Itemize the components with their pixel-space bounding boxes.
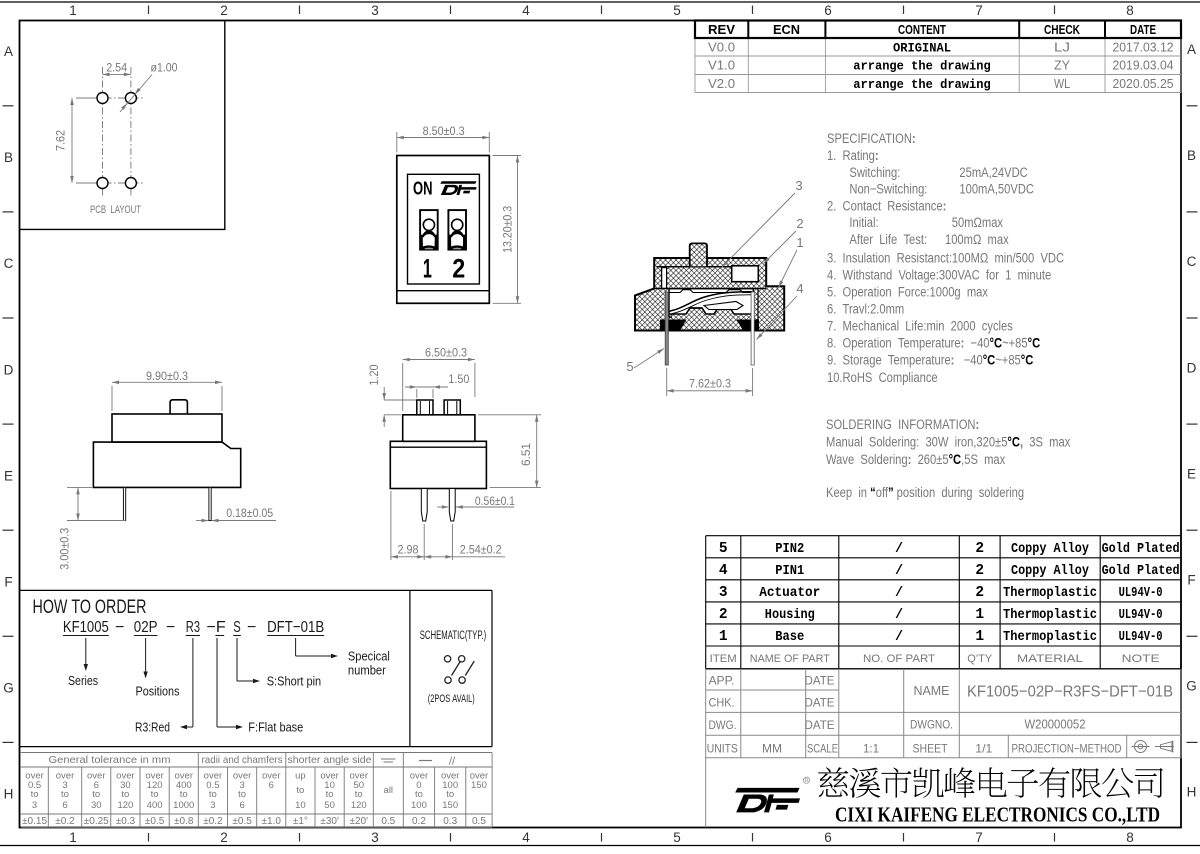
svg-text:ON: ON (413, 179, 433, 199)
svg-text:DATE: DATE (805, 696, 835, 710)
svg-text:ECN: ECN (773, 22, 800, 37)
svg-text:6: 6 (824, 3, 832, 18)
svg-text:1: 1 (975, 607, 984, 623)
svg-text:4. Withstand Voltage:300VAC: 4. Withstand Voltage:300VAC for 1 minute (827, 267, 1051, 282)
svg-text:UNITS: UNITS (707, 742, 738, 756)
svg-text:Gold Plated: Gold Plated (1102, 542, 1180, 557)
svg-text:shorter angle side: shorter angle side (288, 754, 372, 766)
svg-text:5: 5 (673, 830, 681, 845)
svg-text:to: to (180, 789, 188, 800)
svg-text:13.20±0.3: 13.20±0.3 (503, 206, 515, 253)
svg-text:−: − (247, 619, 256, 636)
svg-text:number: number (348, 664, 386, 678)
svg-text:SPECIFICATION:: SPECIFICATION: (827, 131, 916, 146)
svg-text:1. Rating:: 1. Rating: (827, 148, 879, 163)
svg-text:V0.0: V0.0 (708, 41, 735, 55)
svg-text:25mA,24VDC: 25mA,24VDC (959, 165, 1027, 180)
svg-text:MATERIAL: MATERIAL (1017, 653, 1083, 665)
svg-text:0.5: 0.5 (472, 816, 486, 827)
svg-text:NAME OF PART: NAME OF PART (750, 653, 830, 665)
svg-text:CIXI KAIFENG ELECTRONICS CO.,L: CIXI KAIFENG ELECTRONICS CO.,LTD (835, 803, 1160, 827)
svg-text:DWG.: DWG. (709, 718, 737, 732)
svg-text:1: 1 (423, 254, 432, 284)
svg-text:Series: Series (68, 674, 98, 688)
svg-text:5. Operation Force:1000g ma: 5. Operation Force:1000g max (827, 284, 989, 299)
svg-text:2. Contact Resistance:: 2. Contact Resistance: (827, 198, 946, 213)
svg-text:100mA,50VDC: 100mA,50VDC (959, 181, 1034, 196)
svg-text:Non−Switching:: Non−Switching: (849, 181, 927, 196)
svg-text:APP.: APP. (709, 674, 735, 688)
svg-text:to: to (31, 789, 39, 800)
svg-text:2: 2 (452, 254, 465, 284)
svg-text:Initial:: Initial: (849, 215, 878, 230)
svg-text:6. Travl:2.0mm: 6. Travl:2.0mm (827, 301, 904, 316)
svg-text:G: G (1186, 679, 1197, 694)
svg-text:1.20: 1.20 (369, 365, 381, 386)
svg-text:4: 4 (522, 3, 530, 18)
svg-text:MM: MM (762, 742, 782, 756)
svg-text:5: 5 (673, 3, 681, 18)
svg-text:H: H (4, 787, 14, 802)
svg-text:arrange the drawing: arrange the drawing (853, 59, 991, 74)
svg-text:to: to (121, 789, 129, 800)
svg-text:2: 2 (796, 216, 803, 231)
svg-text://: // (449, 756, 456, 768)
svg-text:6: 6 (239, 800, 244, 811)
svg-text:all: all (384, 785, 394, 796)
svg-text:DATE: DATE (805, 718, 835, 732)
svg-text:Actuator: Actuator (759, 586, 820, 601)
svg-text:100mΩ max: 100mΩ max (945, 232, 1009, 247)
svg-text:10: 10 (295, 800, 306, 811)
svg-text:Thermoplastic: Thermoplastic (1003, 586, 1097, 601)
svg-text:E: E (4, 468, 13, 483)
svg-text:6.50±0.3: 6.50±0.3 (425, 348, 467, 360)
svg-text:F: F (4, 575, 12, 590)
svg-text:3: 3 (32, 800, 37, 811)
svg-text:±30′: ±30′ (320, 816, 339, 827)
svg-text:6: 6 (824, 830, 832, 845)
svg-text:F:Flat base: F:Flat base (248, 721, 303, 735)
svg-text:Positions: Positions (136, 685, 180, 699)
svg-text:to: to (446, 789, 454, 800)
svg-text:E: E (1187, 466, 1196, 481)
svg-text:2020.05.25: 2020.05.25 (1113, 77, 1174, 91)
svg-text:1: 1 (796, 235, 803, 250)
svg-text:F: F (1187, 573, 1195, 588)
svg-text:±0.15: ±0.15 (22, 816, 47, 827)
svg-text:±1°: ±1° (293, 816, 308, 827)
svg-text:SOLDERING INFORMATION:: SOLDERING INFORMATION: (826, 417, 979, 432)
svg-text:±0.5: ±0.5 (145, 816, 165, 827)
svg-text:SCALE: SCALE (807, 742, 838, 756)
svg-text:0.18±0.05: 0.18±0.05 (226, 508, 273, 520)
svg-text:Coppy Alloy: Coppy Alloy (1011, 564, 1089, 579)
svg-text:Specical: Specical (348, 650, 390, 664)
svg-text:30: 30 (91, 800, 102, 811)
svg-text:−: − (166, 619, 175, 636)
svg-text:V2.0: V2.0 (708, 77, 735, 91)
svg-text:(2POS AVAIL): (2POS AVAIL) (428, 693, 475, 705)
svg-text:LJ: LJ (1054, 41, 1070, 55)
svg-text:2: 2 (975, 563, 984, 579)
svg-text:4: 4 (796, 281, 803, 296)
svg-text:SCHEMATIC(TYP.): SCHEMATIC(TYP.) (420, 630, 487, 642)
svg-text:REV: REV (708, 22, 735, 37)
svg-text:PCB LAYOUT: PCB LAYOUT (90, 204, 141, 216)
svg-text:6.51: 6.51 (521, 443, 533, 466)
svg-text:/: / (895, 564, 903, 579)
svg-text:R3:Red: R3:Red (135, 721, 170, 735)
svg-text:±0.2: ±0.2 (55, 816, 75, 827)
svg-text:DFT−01B: DFT−01B (267, 619, 324, 636)
svg-text:1000: 1000 (173, 800, 194, 811)
svg-text:9.90±0.3: 9.90±0.3 (146, 371, 188, 383)
svg-text:UL94V-0: UL94V-0 (1119, 630, 1163, 645)
svg-text:120: 120 (117, 800, 133, 811)
svg-text:R3: R3 (186, 619, 200, 636)
svg-text:CONTENT: CONTENT (898, 22, 946, 37)
svg-text:H: H (1187, 785, 1197, 800)
svg-text:10.RoHS Compliance: 10.RoHS Compliance (827, 370, 938, 385)
svg-text:3: 3 (371, 3, 379, 18)
svg-text:7.62: 7.62 (56, 130, 68, 151)
svg-text:KF1005: KF1005 (63, 619, 109, 636)
svg-text:CHK.: CHK. (709, 696, 735, 710)
svg-text:Keep in “off” position durin: Keep in “off” position during soldering (826, 485, 1024, 500)
svg-text:2: 2 (719, 607, 728, 623)
svg-text:7. Mechanical Life:min 2000: 7. Mechanical Life:min 2000 cycles (827, 318, 1013, 333)
svg-text:4: 4 (522, 830, 530, 845)
svg-text:8: 8 (1126, 3, 1134, 18)
svg-text:B: B (1187, 148, 1196, 163)
svg-text:120: 120 (351, 800, 367, 811)
svg-text:S: S (233, 619, 241, 636)
svg-text:6: 6 (269, 780, 274, 791)
svg-text:After Life Test:: After Life Test: (849, 232, 927, 247)
svg-text:9. Storage Temperature: −4: 9. Storage Temperature: −40°C~+85°C (827, 352, 1033, 367)
svg-text:A: A (1187, 42, 1196, 57)
svg-text:3: 3 (795, 178, 802, 193)
svg-text:D: D (1187, 360, 1197, 375)
svg-text:100: 100 (411, 800, 427, 811)
svg-text:Wave Soldering: 260±5°C,5S: Wave Soldering: 260±5°C,5S max (826, 452, 1006, 467)
svg-text:S:Short pin: S:Short pin (267, 675, 322, 689)
svg-text:6: 6 (62, 800, 67, 811)
svg-text:up: up (295, 771, 306, 782)
svg-text:5: 5 (719, 541, 728, 557)
svg-text:7.62±0.3: 7.62±0.3 (689, 379, 731, 391)
svg-text:Thermoplastic: Thermoplastic (1003, 608, 1097, 623)
svg-text:radii and chamfers: radii and chamfers (202, 754, 283, 766)
svg-text:to: to (151, 789, 159, 800)
svg-text:150: 150 (471, 780, 487, 791)
svg-text:±0.2: ±0.2 (203, 816, 223, 827)
svg-text:W20000052: W20000052 (1025, 717, 1086, 732)
svg-text:±0.5: ±0.5 (232, 816, 252, 827)
svg-text:D: D (4, 362, 14, 377)
svg-text:2017.03.12: 2017.03.12 (1113, 41, 1174, 55)
svg-text:ZY: ZY (1054, 59, 1071, 73)
svg-text:to: to (238, 789, 246, 800)
svg-text:Base: Base (775, 630, 804, 645)
svg-text:2: 2 (975, 541, 984, 557)
svg-text:2: 2 (975, 585, 984, 601)
svg-text:PIN1: PIN1 (775, 564, 804, 579)
svg-text:1:1: 1:1 (863, 742, 879, 756)
svg-text:Coppy Alloy: Coppy Alloy (1011, 542, 1089, 557)
svg-text:1: 1 (69, 3, 77, 18)
svg-text:C: C (4, 256, 14, 271)
svg-text:±20′: ±20′ (350, 816, 369, 827)
svg-text:Switching:: Switching: (849, 165, 900, 180)
svg-text:−F: −F (207, 619, 226, 636)
svg-text:General tolerance in mm: General tolerance in mm (49, 754, 171, 766)
svg-text:2: 2 (220, 3, 228, 18)
svg-text:Housing: Housing (765, 608, 815, 623)
svg-text:DWGNO.: DWGNO. (910, 718, 953, 732)
svg-text:±0.25: ±0.25 (84, 816, 109, 827)
svg-text:SHEET: SHEET (913, 742, 949, 756)
svg-text:8: 8 (1126, 830, 1134, 845)
svg-text:to: to (92, 789, 100, 800)
svg-text:Thermoplastic: Thermoplastic (1003, 630, 1097, 645)
svg-text:3. Insulation Resistanct:100: 3. Insulation Resistanct:100MΩ min/500 V… (827, 250, 1064, 265)
svg-text:DATE: DATE (805, 674, 835, 688)
svg-text:C: C (1187, 254, 1197, 269)
svg-text:7: 7 (975, 3, 983, 18)
svg-text:WL: WL (1054, 77, 1070, 91)
svg-text:7: 7 (975, 830, 983, 845)
svg-text:2.98: 2.98 (398, 545, 419, 557)
svg-text:3: 3 (719, 585, 728, 601)
svg-text:A: A (4, 44, 13, 59)
svg-text:Gold Plated: Gold Plated (1102, 564, 1180, 579)
svg-text:Manual Soldering: 30W iron,: Manual Soldering: 30W iron,320±5°C, 3S m… (826, 434, 1071, 449)
svg-text:3: 3 (210, 800, 215, 811)
svg-text:±0.3: ±0.3 (116, 816, 136, 827)
svg-text:to: to (61, 789, 69, 800)
svg-text:0.3: 0.3 (443, 816, 457, 827)
svg-text:/: / (895, 608, 903, 623)
svg-text:ORIGINAL: ORIGINAL (893, 41, 951, 56)
svg-text:R: R (805, 778, 809, 784)
svg-text:B: B (4, 150, 13, 165)
svg-text:400: 400 (147, 800, 163, 811)
svg-text:G: G (3, 681, 14, 696)
svg-text:150: 150 (442, 800, 458, 811)
svg-text:3: 3 (371, 830, 379, 845)
svg-text:50: 50 (324, 800, 335, 811)
svg-text:02P: 02P (134, 619, 158, 636)
svg-text:UL94V-0: UL94V-0 (1119, 608, 1163, 623)
svg-text:PIN2: PIN2 (775, 542, 804, 557)
svg-text:1: 1 (69, 830, 77, 845)
svg-text:to: to (415, 789, 423, 800)
svg-text:Q’TY: Q’TY (967, 653, 993, 665)
svg-text:V1.0: V1.0 (708, 59, 735, 73)
svg-text:PROJECTION−METHOD: PROJECTION−METHOD (1012, 742, 1122, 756)
svg-text:/: / (895, 586, 903, 601)
svg-text:1.50: 1.50 (448, 374, 469, 386)
svg-text:±1.0: ±1.0 (262, 816, 282, 827)
svg-text:8. Operation Temperature: −: 8. Operation Temperature: −40°C~+85°C (827, 335, 1040, 350)
svg-text:CHECK: CHECK (1044, 22, 1080, 37)
svg-text:DATE: DATE (1130, 22, 1156, 37)
svg-text:ø1.00: ø1.00 (151, 63, 178, 75)
svg-text:NOTE: NOTE (1122, 653, 1160, 665)
svg-text:HOW TO ORDER: HOW TO ORDER (33, 597, 147, 618)
svg-text:to: to (209, 789, 217, 800)
svg-text:to: to (326, 789, 334, 800)
svg-text:NAME: NAME (914, 684, 950, 698)
svg-text:2019.03.04: 2019.03.04 (1113, 59, 1174, 73)
svg-text:±0.8: ±0.8 (174, 816, 194, 827)
svg-text:0.5: 0.5 (381, 816, 395, 827)
svg-text:arrange the drawing: arrange the drawing (853, 77, 991, 92)
svg-text:UL94V-0: UL94V-0 (1119, 586, 1163, 601)
svg-text:KF1005−02P−R3FS−DFT−01B: KF1005−02P−R3FS−DFT−01B (967, 684, 1173, 701)
svg-text:NO. OF PART: NO. OF PART (863, 653, 935, 665)
svg-text:0.2: 0.2 (412, 816, 426, 827)
svg-text:−: − (115, 619, 124, 636)
svg-text:1: 1 (975, 629, 984, 645)
svg-text:1/1: 1/1 (975, 742, 992, 756)
svg-text:5: 5 (626, 359, 633, 374)
svg-text:/: / (895, 542, 903, 557)
svg-text:4: 4 (719, 563, 728, 579)
svg-text:8.50±0.3: 8.50±0.3 (423, 126, 465, 138)
svg-text:/: / (895, 630, 903, 645)
svg-text:3.00±0.3: 3.00±0.3 (60, 528, 72, 570)
svg-text:1: 1 (719, 629, 728, 645)
svg-text:to: to (296, 785, 304, 796)
svg-text:2: 2 (220, 830, 228, 845)
svg-text:0.56±0.1: 0.56±0.1 (475, 496, 515, 508)
svg-text:2.54±0.2: 2.54±0.2 (460, 545, 502, 557)
svg-text:to: to (355, 789, 363, 800)
svg-text:50mΩmax: 50mΩmax (952, 215, 1004, 230)
svg-text:ITEM: ITEM (710, 653, 737, 665)
